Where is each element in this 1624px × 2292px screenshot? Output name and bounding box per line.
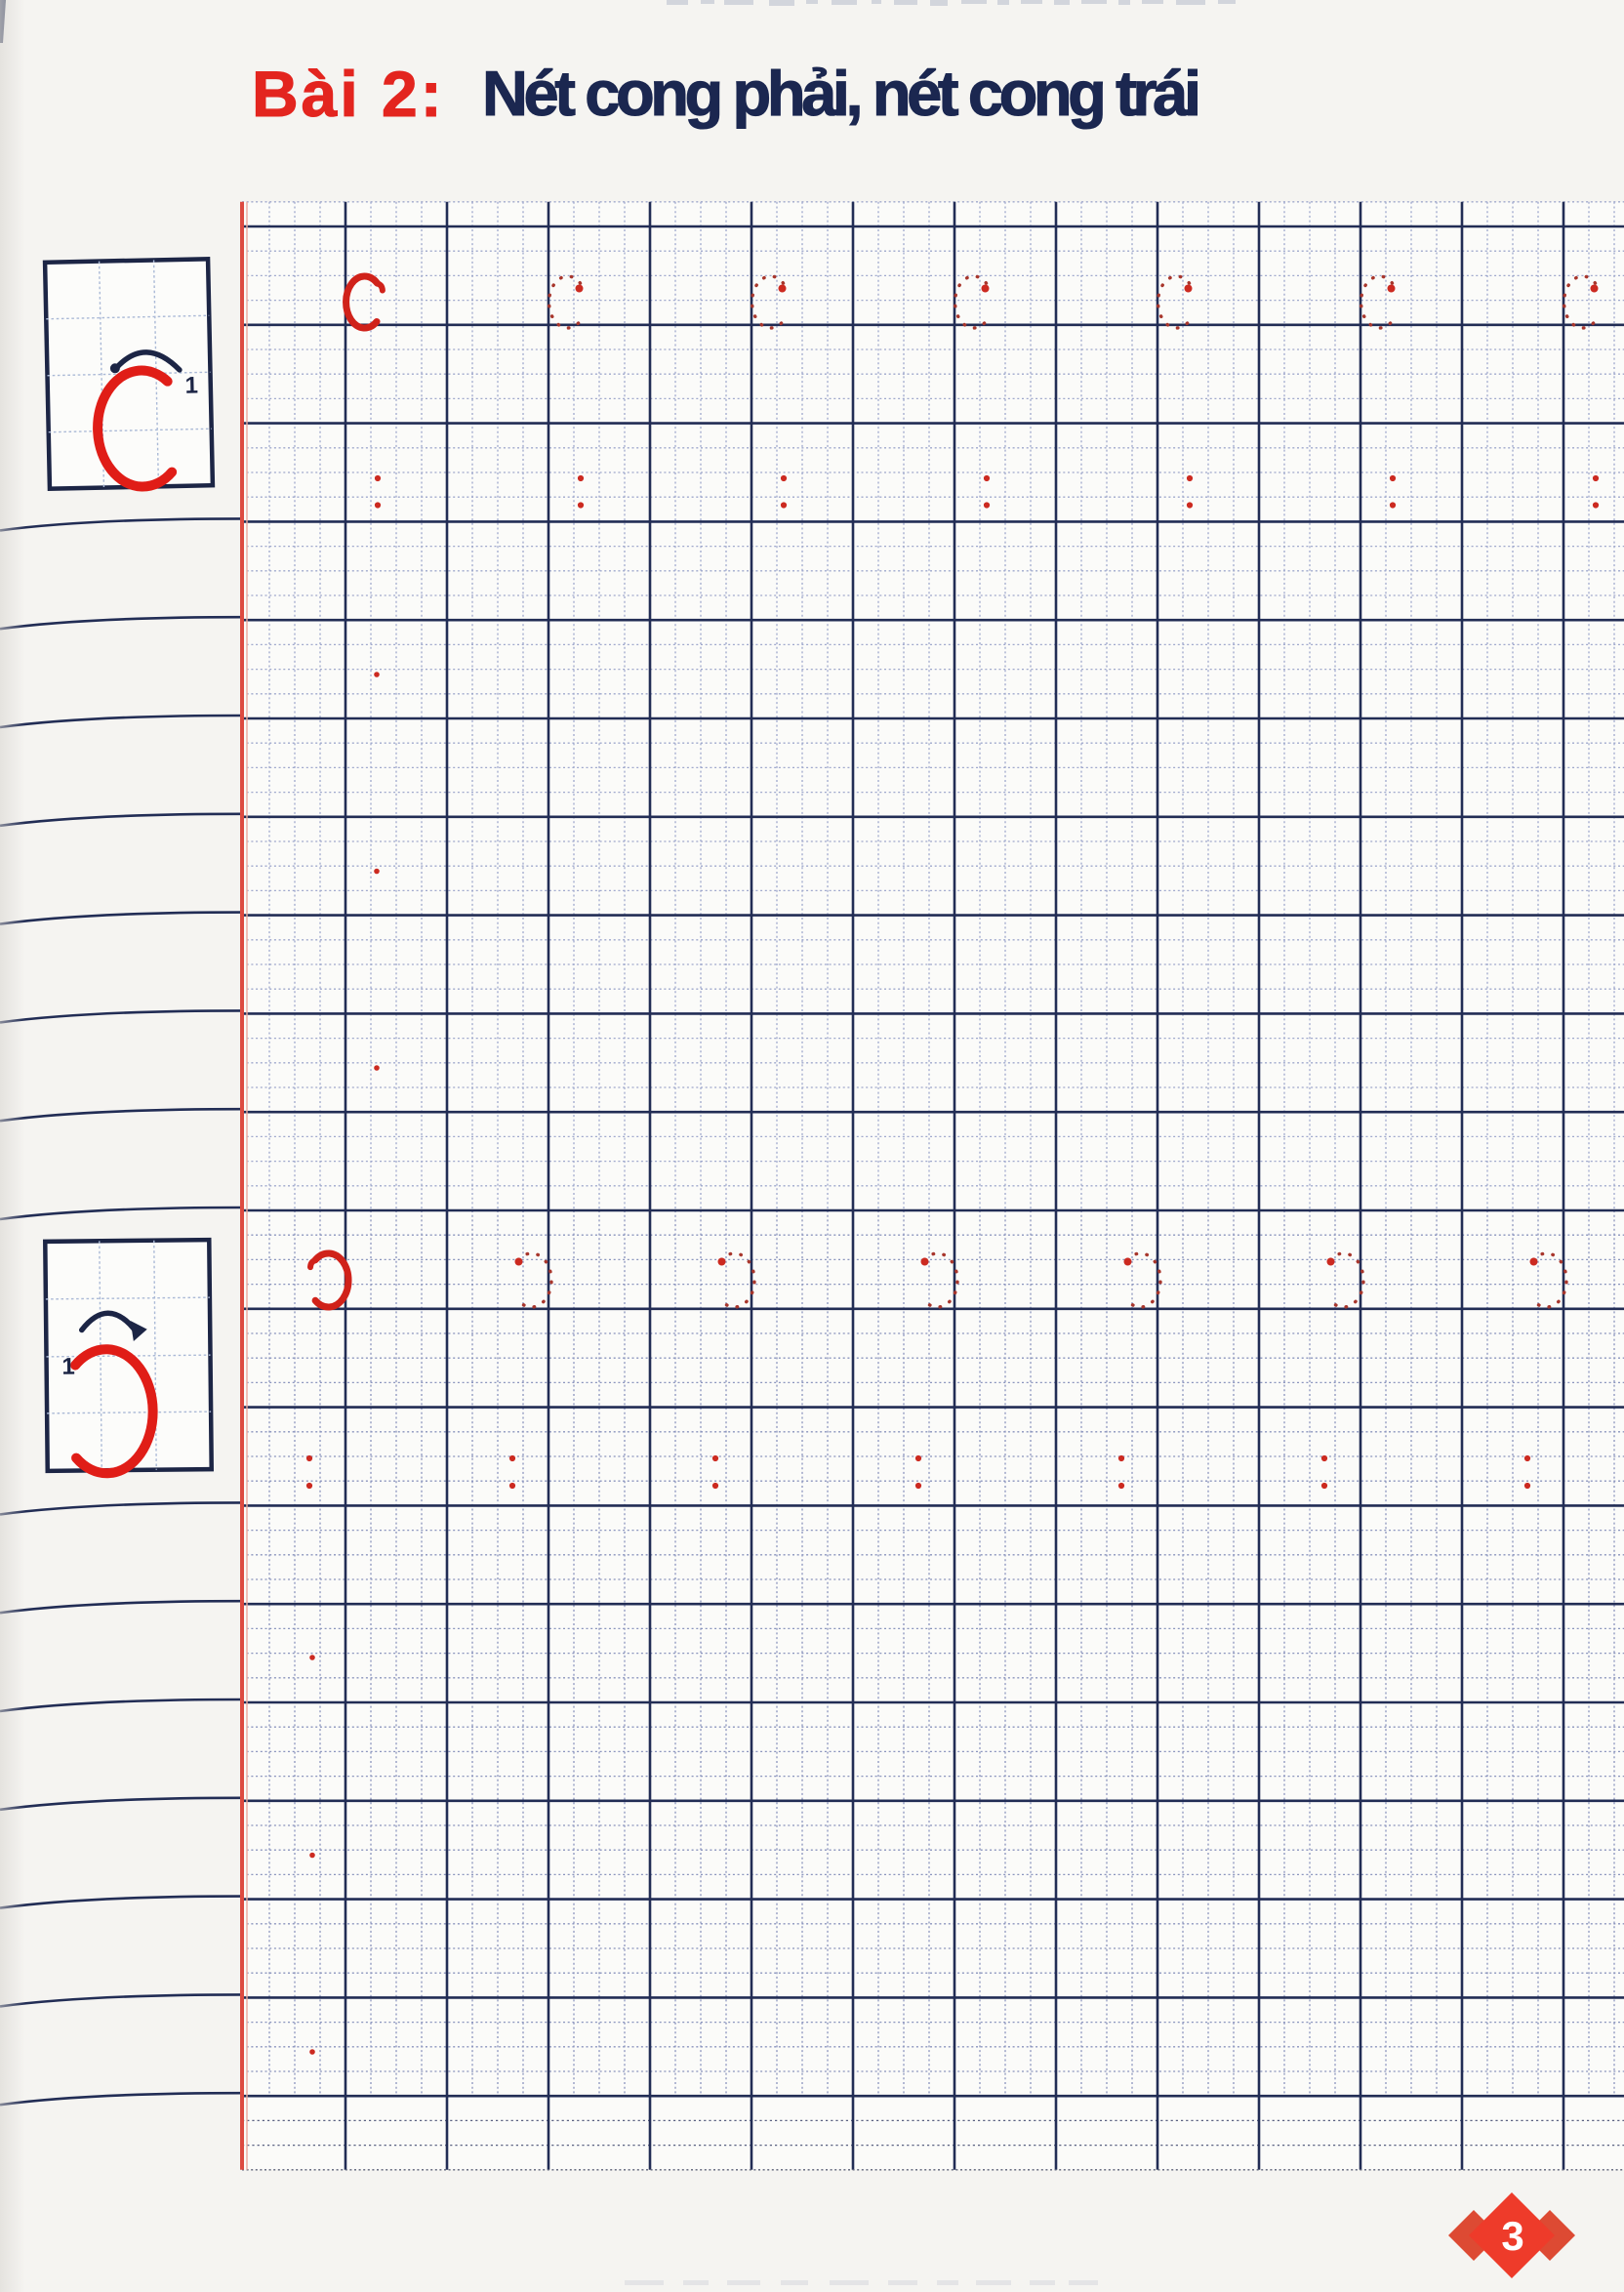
svg-text:3: 3: [1501, 2213, 1523, 2259]
svg-text:1: 1: [184, 373, 198, 399]
svg-text:1: 1: [61, 1354, 75, 1380]
